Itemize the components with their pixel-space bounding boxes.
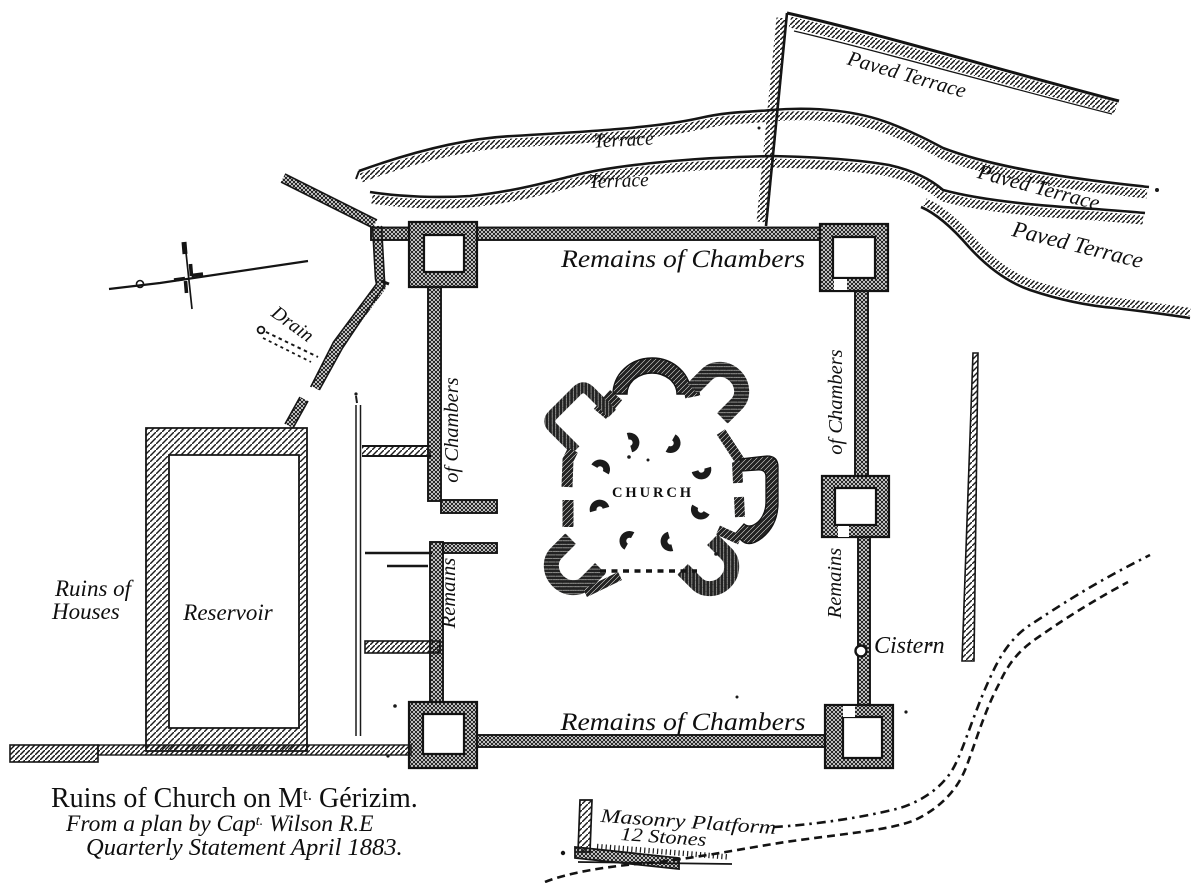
svg-text:Remains of Chambers: Remains of Chambers bbox=[560, 246, 805, 273]
svg-text:Houses: Houses bbox=[51, 599, 120, 624]
svg-text:of Chambers: of Chambers bbox=[825, 349, 847, 454]
svg-text:Terrace: Terrace bbox=[588, 170, 649, 193]
svg-text:Ruins of Church on Mt. Gérizi: Ruins of Church on Mt. Gérizim. bbox=[51, 783, 418, 814]
svg-text:Remains of Chambers: Remains of Chambers bbox=[559, 709, 805, 736]
svg-text:Ruins of: Ruins of bbox=[54, 576, 135, 601]
svg-text:Cistern: Cistern bbox=[874, 633, 945, 659]
svg-text:CHURCH: CHURCH bbox=[612, 485, 694, 501]
svg-text:Remains: Remains bbox=[438, 558, 460, 630]
svg-text:of Chambers: of Chambers bbox=[441, 377, 463, 482]
svg-text:Terrace: Terrace bbox=[593, 128, 654, 152]
svg-text:Quarterly Statement April 1883: Quarterly Statement April 1883. bbox=[86, 834, 403, 861]
svg-text:Paved Terrace: Paved Terrace bbox=[1009, 216, 1146, 273]
svg-text:Reservoir: Reservoir bbox=[182, 600, 273, 625]
svg-text:Drain: Drain bbox=[266, 302, 317, 347]
svg-text:Remains: Remains bbox=[824, 548, 846, 620]
